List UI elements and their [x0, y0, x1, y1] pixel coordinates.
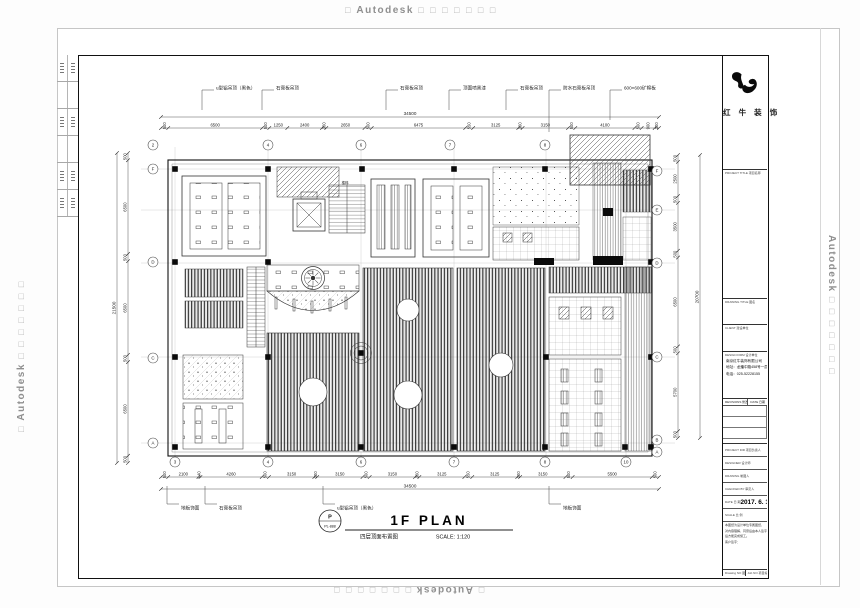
autodesk-watermark-bottom: □ Autodesk □ □ □ □ □ □ □: [332, 584, 484, 595]
dim-text: 6475: [414, 122, 424, 127]
strip-cell: [57, 190, 78, 217]
dim-text: 500: [363, 471, 368, 479]
drawing-number-row: Drawing NO 图号 Job NO 项目编号: [723, 570, 767, 576]
ceiling-plan-drawing: 5006500500125024003002650500647555031253…: [79, 55, 721, 578]
dim-total-bottom: 34500: [404, 484, 417, 489]
grid-bubble-label: 10: [624, 460, 629, 465]
dim-text: 3150: [388, 471, 398, 476]
dim-text: 500: [162, 471, 167, 479]
dim-text: 5500: [608, 471, 618, 476]
dim-total-top: 34500: [404, 111, 417, 116]
autodesk-watermark-left: □ Autodesk □ □ □ □ □ □ □: [16, 280, 27, 432]
ceiling-annotation: 顶面喷黑漆: [463, 85, 486, 92]
dim-text: 300: [414, 471, 419, 479]
plan-subtitle: 四层顶面布置图: [360, 533, 398, 541]
company-name: 南京红牛装饰有限公司: [723, 357, 767, 364]
dim-text: 500: [365, 122, 370, 130]
strip-cell: [57, 109, 78, 136]
revisions-header: REVISIONS 修改: [723, 399, 748, 405]
floor-annotation: 地板饰面: [563, 505, 582, 512]
section-project-title: PROJECT TITLE 项目名称: [723, 170, 767, 175]
room-label: 楼梯: [342, 180, 349, 185]
autodesk-watermark-top: □ Autodesk □ □ □ □ □ □ □: [345, 5, 497, 16]
dim-text: 500: [122, 455, 127, 463]
dim-text: 200: [516, 471, 521, 479]
revisions-date-header: DATE 日期: [748, 399, 767, 405]
job-no-label: Job NO 项目编号: [746, 570, 768, 576]
ceiling-annotation: 防水石膏板吊顶: [563, 85, 596, 92]
plan-scale: SCALE: 1:120: [436, 535, 470, 541]
dim-total-left: 21500: [112, 301, 117, 314]
grid-bubble-label: C: [655, 355, 658, 360]
dim-text: 3500: [672, 221, 677, 231]
grid-bubble-label: C: [151, 356, 154, 361]
dim-text: 3125: [491, 122, 501, 127]
dim-text: 500: [122, 354, 127, 362]
dim-text: 500: [566, 471, 571, 479]
autodesk-watermark-right: Autodesk □ □ □ □ □ □ □: [826, 235, 837, 376]
floor-annotation: 地板饰面: [181, 505, 200, 512]
drawing-no-label: Drawing NO 图号: [723, 570, 746, 576]
hatch-mineral-board: [570, 135, 650, 185]
dim-text: 3125: [490, 471, 500, 476]
dim-text: 6500: [122, 202, 127, 212]
dim-text: 200: [313, 471, 318, 479]
sheet-inner-border: [820, 28, 821, 585]
dim-text: 300: [518, 122, 523, 130]
dim-text: 6500: [122, 404, 127, 414]
dim-text: 300: [654, 122, 659, 130]
grid-bubble-label: F: [152, 167, 155, 172]
cad-sheet-page: 5006500500125024003002650500647555031253…: [0, 0, 860, 608]
dim-text: 500: [635, 122, 640, 130]
dim-text: 550: [465, 471, 470, 479]
ceiling-annotation: 石膏板吊顶: [520, 85, 543, 92]
dim-text: 4260: [226, 471, 236, 476]
field-checked-by: CHECKED BY 审定人: [723, 487, 754, 491]
title-badge-bottom: PL-888: [324, 525, 336, 529]
dim-text: 500: [672, 154, 677, 162]
dim-text: 500: [653, 471, 658, 479]
field-date: DATE 日 期: [723, 500, 740, 504]
company-logo-text: 红 牛 装 饰: [723, 107, 767, 118]
dim-text: 500: [672, 430, 677, 438]
date-value: 2017. 6. 11: [740, 499, 767, 506]
ceiling-annotation: 石膏板吊顶: [276, 85, 299, 92]
dim-text: 3150: [538, 471, 548, 476]
dim-text: 6500: [210, 122, 220, 127]
company-address: 地址：龙蟠中路458号一层: [723, 364, 767, 371]
dim-text: 4100: [600, 122, 610, 127]
signature-note: 本图纸为设计单位专属图纸， 对内容理解、同意后由本人签字 后方能完成施工。 客户…: [723, 522, 767, 570]
dim-text: 900: [645, 122, 650, 130]
dim-text: 500: [162, 122, 167, 130]
field-designer: DESIGNER 设计师: [723, 461, 751, 465]
title-badge-top: P: [328, 515, 332, 521]
grid-bubble-label: D: [655, 261, 658, 266]
binding-strip: [57, 55, 79, 578]
dotted-ceiling: [493, 167, 579, 225]
bull-logo-icon: [728, 70, 762, 96]
dim-text: 2500: [672, 174, 677, 184]
ceiling-zones: [182, 135, 651, 451]
strip-cell: [57, 55, 78, 82]
section-drawing-title: DRAWING TITLE 图名: [723, 299, 767, 304]
drawing-title-group: P PL-888 1F PLAN 四层顶面布置图 SCALE: 1:120: [319, 510, 513, 541]
speckle-ceiling: [183, 355, 243, 399]
floor-annotation: u型铝吊顶（黑色）: [337, 505, 376, 512]
company-logo: 红 牛 装 饰: [723, 56, 767, 170]
grid-bubble-label: A: [656, 450, 659, 455]
strip-cell: [57, 82, 78, 109]
dim-text: 500: [672, 346, 677, 354]
dim-text: 3150: [287, 471, 297, 476]
dim-text: 2650: [341, 122, 351, 127]
dim-text: 500: [569, 122, 574, 130]
dim-text: 6500: [122, 303, 127, 313]
revisions-table: REVISIONS 修改 DATE 日期: [723, 399, 767, 444]
dim-text: 500: [122, 152, 127, 160]
strip-cell: [57, 136, 78, 163]
grid-bubble-label: E: [656, 208, 659, 213]
dim-text: 140: [197, 471, 202, 479]
dim-text: 5700: [672, 387, 677, 397]
ceiling-annotation: 石膏板吊顶: [400, 85, 423, 92]
field-scale: SCALE 比 例: [723, 513, 743, 517]
section-client: CLIENT 建设单位: [723, 325, 767, 330]
ceiling-annotation: u型铝吊顶（黑色）: [216, 85, 255, 92]
dim-text: 6500: [672, 297, 677, 307]
dim-text: 500: [122, 253, 127, 261]
dim-text: 500: [672, 195, 677, 203]
strip-cell: [57, 163, 78, 190]
dim-text: 500: [672, 250, 677, 258]
dim-text: 3125: [437, 471, 447, 476]
floor-annotation: 石膏板吊顶: [219, 505, 242, 512]
company-phone: 电话：025-52228155: [723, 370, 767, 377]
grid-bubble-label: B: [656, 438, 659, 443]
dim-text: 3150: [335, 471, 345, 476]
grid-bubble-label: D: [151, 260, 154, 265]
field-drawing: DRAWING 制图人: [723, 474, 749, 478]
dim-text: 1250: [274, 122, 284, 127]
grid-bubble-label: A: [152, 441, 155, 446]
signature-fields: PROJECT DIR 项目负责人 DESIGNER 设计师 DRAWING 制…: [723, 444, 767, 522]
field-project-dir: PROJECT DIR 项目负责人: [723, 448, 761, 452]
dim-text: 500: [263, 122, 268, 130]
ceiling-annotation: 600×600矿棉板: [624, 85, 656, 92]
title-block: 红 牛 装 饰 PROJECT TITLE 项目名称 DRAWING TITLE…: [722, 56, 767, 576]
tile-ceiling: [493, 227, 579, 260]
dim-total-right: 20700: [695, 290, 700, 303]
dim-text: 300: [321, 122, 326, 130]
dim-text: 2100: [179, 471, 189, 476]
grid-bubble-label: F: [656, 169, 659, 174]
dim-text: 550: [466, 122, 471, 130]
plan-title: 1F PLAN: [390, 513, 467, 528]
dim-text: 500: [263, 471, 268, 479]
dim-text: 2400: [300, 122, 310, 127]
